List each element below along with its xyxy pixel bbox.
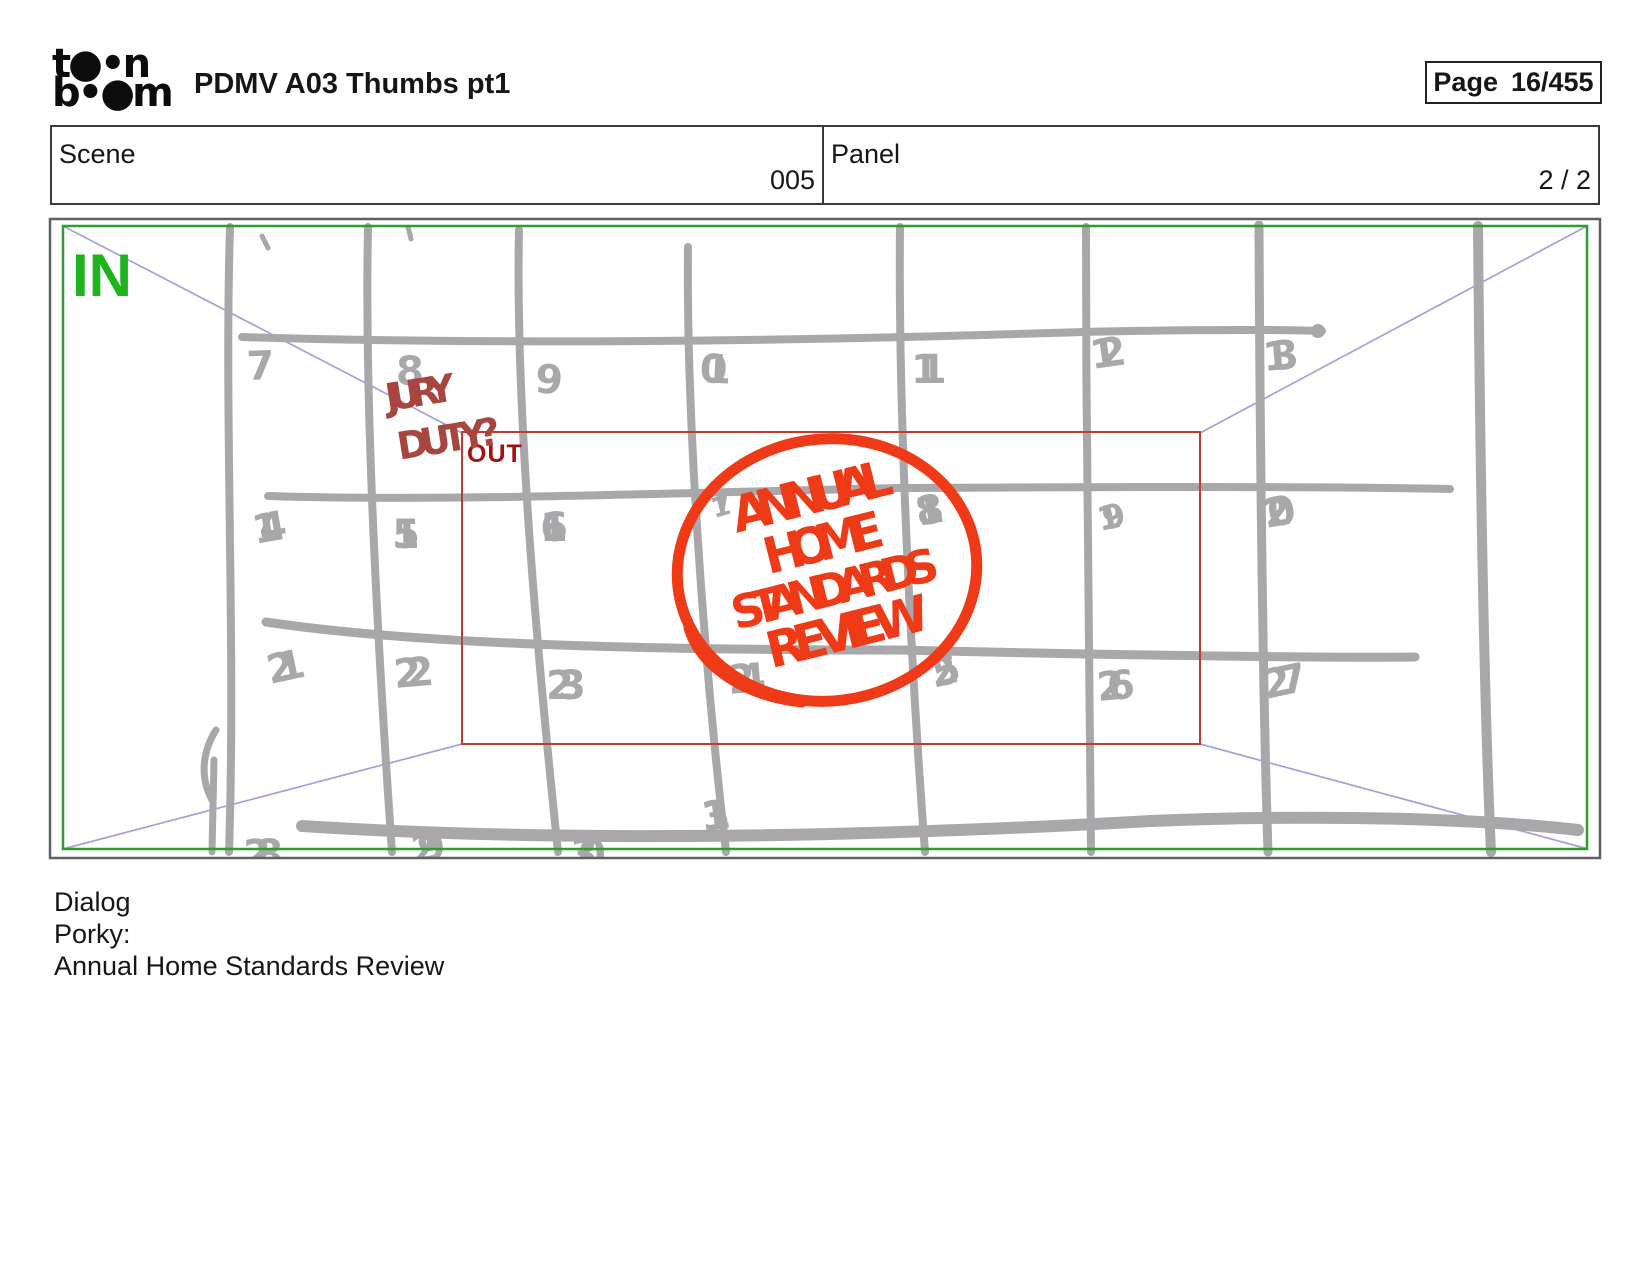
calendar-day: 23 bbox=[546, 663, 586, 709]
calendar-day: 9 bbox=[533, 356, 565, 404]
calendar-day: 12 bbox=[1087, 328, 1129, 379]
calendar-day: 10 bbox=[698, 346, 732, 394]
calendar-day: 13 bbox=[1261, 332, 1301, 381]
calendar-day: 30 bbox=[570, 832, 606, 878]
dialog-speaker: Porky: bbox=[54, 918, 444, 950]
in-label: IN bbox=[72, 242, 132, 309]
calendar-day: 11 bbox=[911, 347, 947, 393]
calendar-day: 16 bbox=[540, 505, 568, 551]
calendar-grid-line-end bbox=[1311, 324, 1325, 338]
calendar-day: 27 bbox=[1259, 655, 1312, 709]
calendar-day: 15 bbox=[392, 512, 420, 558]
calendar-day: 7 bbox=[246, 343, 275, 390]
calendar-grid-vline bbox=[212, 760, 214, 852]
calendar-grid-vline bbox=[228, 227, 231, 852]
dialog-line: Annual Home Standards Review bbox=[54, 950, 444, 982]
calendar-day: 22 bbox=[392, 649, 436, 698]
dialog-block: Dialog Porky: Annual Home Standards Revi… bbox=[54, 886, 444, 982]
dialog-label: Dialog bbox=[54, 886, 444, 918]
stray-tick bbox=[408, 227, 411, 239]
calendar-day: 28 bbox=[243, 832, 283, 878]
storyboard-panel: 7 8 9 10 11 12 13 14 15 16 17 18 19 20 2… bbox=[0, 0, 1650, 1275]
calendar-day: 26 bbox=[1095, 662, 1137, 711]
